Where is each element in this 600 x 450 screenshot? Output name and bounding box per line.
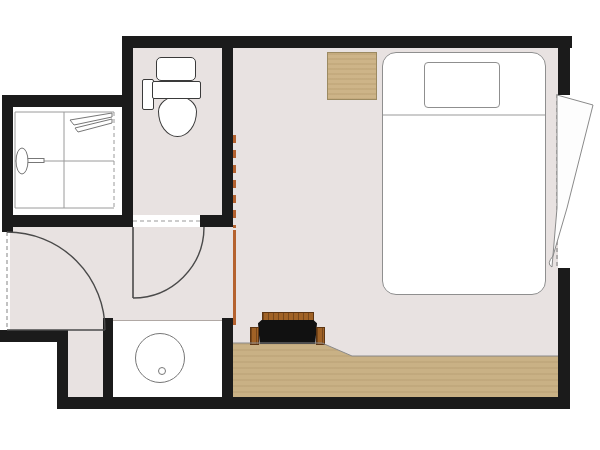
- wall-top: [122, 36, 572, 48]
- wall-shower-top: [2, 95, 133, 107]
- bed-pillow: [424, 62, 500, 108]
- wall-shower-bottom: [2, 215, 133, 227]
- wall-shower-left: [2, 95, 13, 232]
- wall-bottom: [57, 397, 570, 409]
- wall-right-below-window: [558, 268, 570, 409]
- bench-backrest: [262, 312, 314, 321]
- shower-room-floor: [13, 107, 122, 215]
- entry-hall-floor: [10, 227, 233, 320]
- nightstand: [327, 52, 377, 100]
- wall-entry-bottom: [0, 330, 68, 342]
- wall-vanity-left-post: [103, 318, 113, 409]
- wall-toilet-right: [222, 36, 233, 227]
- wall-vanity-right-post: [222, 318, 233, 409]
- washbasin-drain: [158, 367, 166, 375]
- bench-armrest-left: [250, 327, 259, 345]
- toilet-seat-lid: [152, 81, 201, 99]
- toilet-tank: [156, 57, 196, 81]
- bench-seat: [258, 320, 317, 344]
- wall-toilet-left: [122, 36, 133, 227]
- washbasin: [135, 333, 185, 383]
- wall-right-above-window: [558, 36, 570, 95]
- entry-hall-corridor-floor: [68, 318, 103, 397]
- floor-plan: [0, 0, 600, 450]
- bench-armrest-right: [316, 327, 325, 345]
